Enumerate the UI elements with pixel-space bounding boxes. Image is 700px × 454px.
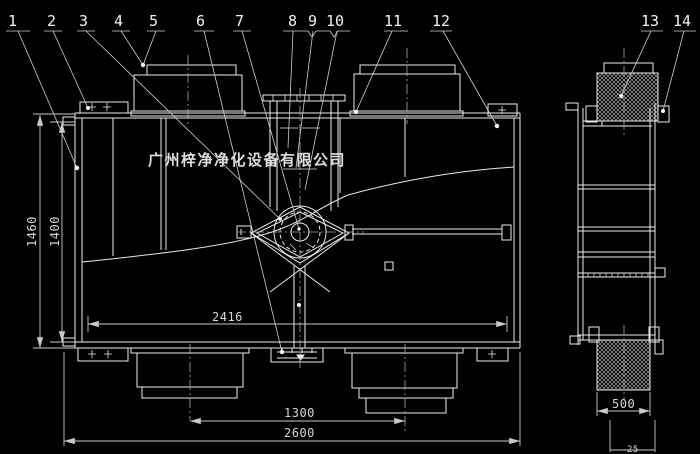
dim-inner-height: 1400: [49, 216, 61, 247]
callout-leaders: [6, 31, 696, 354]
dim-inner-width: 2416: [212, 311, 243, 323]
callout-7: 7: [235, 14, 244, 29]
callout-1: 1: [8, 14, 17, 29]
callout-11: 11: [384, 14, 402, 29]
cad-sheet: 1 2 3 4 5 6 7 8 9 10 11 12 13 14 1460 14…: [0, 0, 700, 454]
callout-9: 9: [308, 14, 317, 29]
callout-6: 6: [196, 14, 205, 29]
company-watermark: 广州梓净净化设备有限公司: [148, 149, 346, 170]
dim-overall-width: 2600: [284, 427, 315, 439]
centerlines: [188, 48, 624, 433]
main-view: [63, 65, 520, 413]
dim-clipped-bottom: 25: [627, 446, 639, 454]
callout-12: 12: [432, 14, 450, 29]
side-view: [566, 63, 669, 390]
callout-8: 8: [288, 14, 297, 29]
callout-4: 4: [114, 14, 123, 29]
callout-5: 5: [149, 14, 158, 29]
dim-duct-centers: 1300: [284, 407, 315, 419]
callout-3: 3: [79, 14, 88, 29]
dim-overall-height: 1460: [26, 216, 38, 247]
callout-10: 10: [326, 14, 344, 29]
callout-13: 13: [641, 14, 659, 29]
callout-14: 14: [673, 14, 691, 29]
callout-2: 2: [47, 14, 56, 29]
dim-filter-width: 500: [612, 398, 635, 410]
drawing-linework: [0, 0, 700, 454]
